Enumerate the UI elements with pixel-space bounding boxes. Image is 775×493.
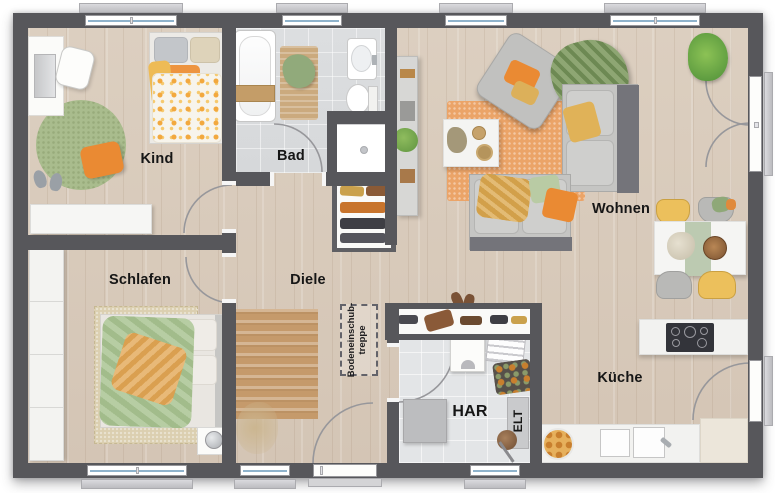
room-label-har: HAR bbox=[425, 403, 515, 421]
wall-bad-south-left bbox=[236, 172, 274, 186]
door-handle bbox=[754, 122, 759, 128]
burner bbox=[672, 339, 680, 347]
cooktop bbox=[666, 323, 714, 352]
kitchen-sink bbox=[600, 429, 630, 457]
pillow bbox=[154, 37, 188, 63]
laundry-basket bbox=[492, 359, 534, 396]
shoes bbox=[340, 218, 386, 229]
window-sill bbox=[79, 3, 183, 13]
window-bad bbox=[282, 15, 342, 26]
window-handle bbox=[136, 467, 139, 474]
shelf-plant bbox=[394, 128, 418, 152]
orange-pillow bbox=[541, 187, 579, 223]
plate bbox=[703, 236, 727, 260]
towel-on-chair-orange bbox=[726, 199, 736, 210]
window-kind bbox=[85, 15, 177, 26]
window-wohnen-1 bbox=[445, 15, 507, 26]
room-label-kind: Kind bbox=[112, 151, 202, 167]
door-handle bbox=[320, 466, 323, 475]
dining-table bbox=[654, 221, 746, 275]
elt-label: ELT bbox=[511, 401, 525, 441]
dried-plant bbox=[447, 127, 467, 153]
laptop bbox=[34, 54, 56, 98]
pillow bbox=[190, 37, 220, 63]
wall-kind-bad bbox=[222, 28, 236, 181]
door-jamb bbox=[222, 253, 236, 257]
terrace-door-sill bbox=[764, 72, 773, 176]
window-glass bbox=[448, 20, 504, 22]
child-bed bbox=[149, 32, 223, 144]
fruit-bowl bbox=[542, 428, 574, 460]
sofa-back bbox=[617, 85, 639, 193]
dining-chair-yellow bbox=[698, 271, 736, 299]
room-label-bad: Bad bbox=[246, 148, 336, 164]
window-sill bbox=[81, 479, 193, 489]
door-jamb bbox=[222, 181, 236, 185]
burner bbox=[671, 327, 680, 336]
books bbox=[400, 69, 415, 78]
shoes bbox=[340, 185, 364, 196]
window-sill bbox=[234, 479, 296, 489]
attic-hatch-label-line1: Bodeneinschub- bbox=[346, 297, 357, 383]
bowl bbox=[472, 126, 486, 140]
wall-har-west-lower bbox=[387, 402, 399, 463]
toilet-tank bbox=[368, 86, 378, 112]
room-label-diele: Diele bbox=[263, 272, 353, 288]
books bbox=[400, 101, 415, 121]
wall-kind-schlafen bbox=[13, 235, 232, 250]
window-har bbox=[470, 465, 520, 476]
burner bbox=[684, 326, 696, 338]
wall-schlafen-diele bbox=[222, 303, 236, 463]
attic-hatch-label-line2: treppe bbox=[357, 297, 368, 383]
washbasin bbox=[347, 38, 377, 80]
terrace-double-door bbox=[749, 76, 762, 172]
door-jamb bbox=[222, 229, 236, 233]
floor-plan: Bodeneinschub- treppe Kind Bad Wohnen bbox=[0, 0, 775, 493]
shoes bbox=[340, 233, 386, 243]
bowl bbox=[476, 144, 493, 161]
dining-chair-gray bbox=[656, 271, 692, 299]
window-glass bbox=[243, 470, 287, 472]
window-diele bbox=[240, 465, 290, 476]
window-sill bbox=[604, 3, 706, 13]
wall-shower-west bbox=[327, 111, 337, 177]
shoes bbox=[460, 316, 482, 325]
wardrobe bbox=[29, 249, 64, 461]
shoes bbox=[511, 316, 527, 324]
room-label-wohnen: Wohnen bbox=[576, 201, 666, 217]
shoes bbox=[398, 315, 418, 324]
bathtub bbox=[234, 30, 276, 122]
door-jamb bbox=[222, 299, 236, 303]
door-jamb bbox=[387, 398, 399, 402]
kitchen-corner-cabinet bbox=[700, 418, 748, 463]
entry-wardrobe bbox=[385, 303, 542, 340]
burner bbox=[700, 327, 708, 335]
bathtub-basin bbox=[239, 36, 271, 116]
faucet bbox=[372, 55, 377, 65]
wall-har-east bbox=[530, 303, 542, 463]
double-bed bbox=[100, 314, 222, 428]
window-glass bbox=[285, 20, 339, 22]
floral-duvet bbox=[152, 73, 222, 143]
wall-bad-wohnen bbox=[385, 28, 397, 245]
window-schlafen bbox=[87, 465, 187, 476]
kitchen-door bbox=[749, 360, 762, 422]
shower-tray bbox=[336, 124, 390, 174]
burner bbox=[697, 338, 707, 348]
door-jamb bbox=[387, 343, 399, 347]
attic-hatch-label: Bodeneinschub- treppe bbox=[346, 297, 372, 383]
window-sill bbox=[276, 3, 348, 13]
window-handle bbox=[654, 17, 657, 24]
wall-har-west-upper bbox=[387, 303, 399, 347]
mustard-blanket bbox=[475, 173, 533, 224]
bedside-lamp bbox=[205, 431, 223, 449]
basin-bowl bbox=[351, 45, 372, 72]
kitchen-door-sill bbox=[764, 356, 773, 426]
sofa-back bbox=[470, 237, 572, 251]
dried-grass-plant bbox=[236, 402, 278, 454]
kitchen-sink bbox=[633, 427, 665, 458]
entry-step bbox=[308, 478, 382, 487]
window-glass bbox=[473, 470, 517, 472]
washing-machine bbox=[450, 335, 485, 372]
entrance-door bbox=[313, 464, 377, 477]
washer-door bbox=[461, 360, 475, 369]
window-wohnen-2 bbox=[610, 15, 700, 26]
shoes bbox=[340, 202, 386, 213]
coffee-table bbox=[443, 119, 499, 167]
room-label-kueche: Küche bbox=[575, 370, 665, 386]
shoes bbox=[490, 315, 508, 324]
kind-sideboard bbox=[30, 204, 152, 234]
bath-caddy bbox=[235, 85, 275, 102]
window-handle bbox=[130, 17, 133, 24]
room-label-schlafen: Schlafen bbox=[95, 272, 185, 288]
wall-shower-north bbox=[335, 111, 397, 124]
door-jamb bbox=[322, 172, 326, 186]
shower-drain bbox=[360, 146, 368, 154]
toilet bbox=[346, 84, 370, 114]
window-sill bbox=[464, 479, 526, 489]
books bbox=[400, 169, 415, 183]
potted-plant bbox=[688, 33, 728, 81]
door-jamb bbox=[270, 172, 274, 186]
window-sill bbox=[439, 3, 513, 13]
sofa-cushion bbox=[566, 140, 614, 186]
